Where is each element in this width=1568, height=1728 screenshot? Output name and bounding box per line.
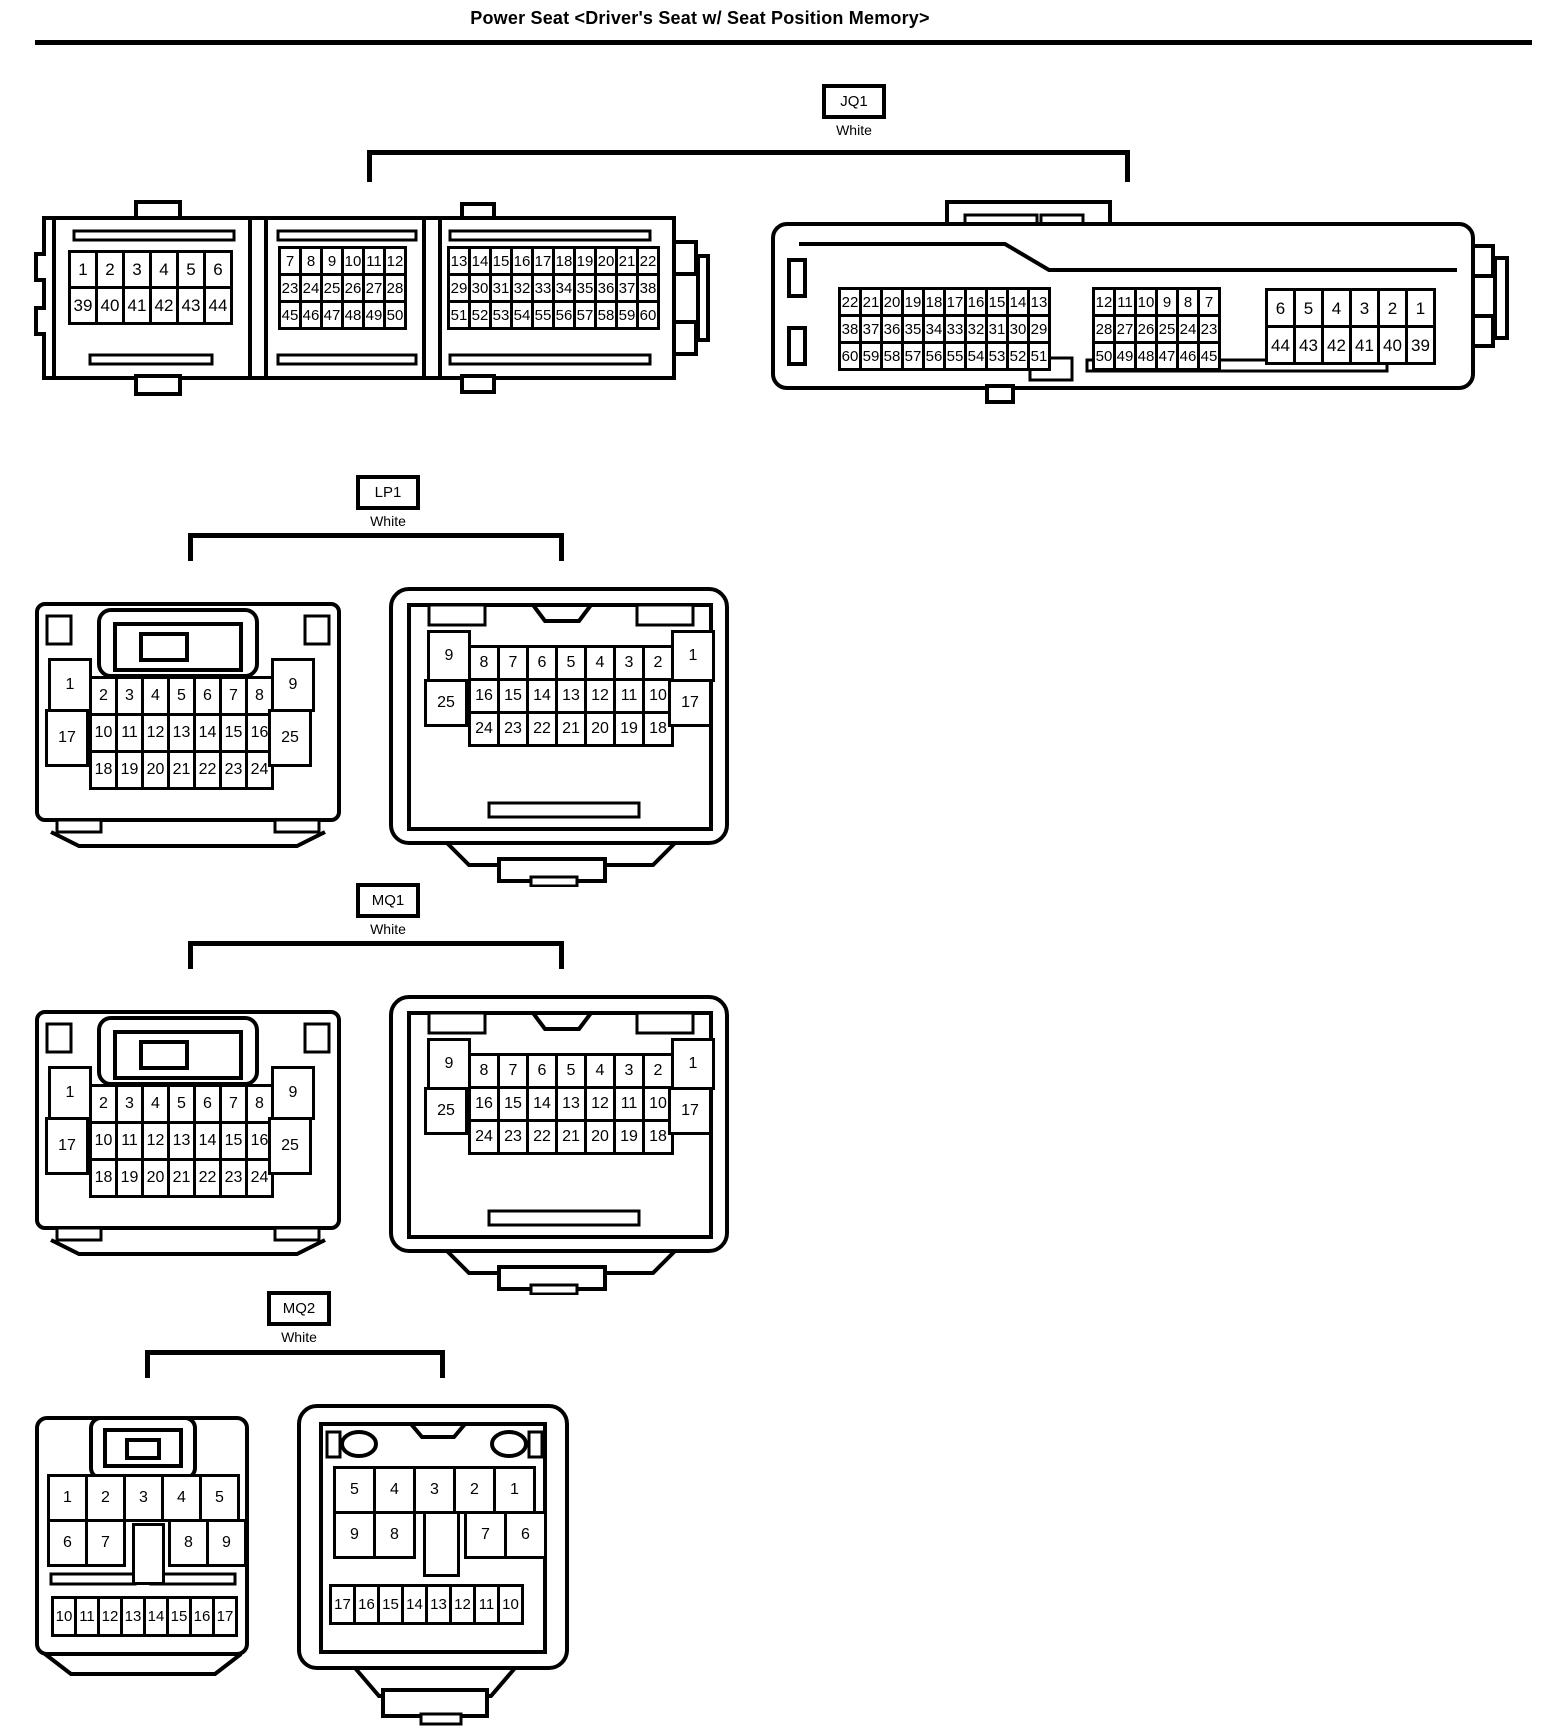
jq1-bracket bbox=[367, 150, 1130, 182]
jq1-label: JQ1 bbox=[840, 93, 868, 110]
mq2-color-label: White bbox=[247, 1329, 351, 1345]
pin-cavity-25: 25 bbox=[424, 679, 468, 727]
pin-cavity-19: 19 bbox=[115, 750, 144, 790]
pin-cavity-16: 16 bbox=[353, 1584, 380, 1625]
mq2-left-strip: 1011121314151617 bbox=[51, 1596, 238, 1637]
pin-cavity-13: 13 bbox=[555, 678, 587, 714]
pin-cavity-40: 40 bbox=[95, 286, 125, 325]
pin-cavity-blank bbox=[423, 1511, 460, 1577]
pin-cavity-8: 8 bbox=[168, 1519, 209, 1567]
pin-cavity-21: 21 bbox=[555, 1119, 587, 1155]
pin-cavity-5: 5 bbox=[333, 1466, 376, 1514]
pin-cavity-3: 3 bbox=[123, 1474, 164, 1522]
pin-cavity-6: 6 bbox=[526, 1053, 558, 1089]
pin-cavity-18: 18 bbox=[89, 750, 118, 790]
pin-cavity-1: 1 bbox=[1405, 288, 1436, 328]
pin-cavity-23: 23 bbox=[219, 750, 248, 790]
pin-cavity-9: 9 bbox=[333, 1511, 376, 1559]
pin-row: 29303132333435363738 bbox=[447, 273, 660, 303]
pin-row: 789101112 bbox=[278, 246, 407, 276]
jq1-right-block-b: 121110987282726252423504948474645 bbox=[1092, 287, 1221, 371]
pin-cavity-6: 6 bbox=[193, 676, 222, 716]
pin-cavity-3: 3 bbox=[115, 676, 144, 716]
pin-cavity-7: 7 bbox=[219, 676, 248, 716]
pin-cavity-9: 9 bbox=[271, 1066, 315, 1120]
pin-cavity-12: 12 bbox=[141, 713, 170, 753]
pin-cavity-11: 11 bbox=[115, 1121, 144, 1161]
pin-cavity-23: 23 bbox=[497, 1119, 529, 1155]
pin-cavity-6: 6 bbox=[203, 250, 233, 289]
pin-cavity-9: 9 bbox=[271, 658, 315, 712]
pin-cavity-17: 17 bbox=[45, 709, 89, 767]
lp1-left-pin-area: 117 23456781011121314151618192021222324 … bbox=[48, 658, 315, 790]
mq2-right-row1: 54321 bbox=[333, 1466, 547, 1514]
pin-cavity-13: 13 bbox=[1027, 287, 1051, 317]
pin-row: 22212019181716151413 bbox=[838, 287, 1051, 317]
mq2-label: MQ2 bbox=[283, 1300, 316, 1317]
pin-cavity-1: 1 bbox=[48, 1066, 92, 1120]
pin-cavity-5: 5 bbox=[1293, 288, 1324, 328]
pin-cavity-1: 1 bbox=[671, 1038, 715, 1090]
pin-cavity-15: 15 bbox=[497, 678, 529, 714]
pin-row: 16151413121110 bbox=[468, 678, 674, 714]
pin-cavity-44: 44 bbox=[203, 286, 233, 325]
pin-cavity-24: 24 bbox=[468, 1119, 500, 1155]
pin-cavity-22: 22 bbox=[193, 1158, 222, 1198]
pin-row: 60595857565554535251 bbox=[838, 341, 1051, 371]
pin-row: 18192021222324 bbox=[89, 750, 274, 790]
mq2-left-pin-area: 12345 6789 bbox=[47, 1474, 247, 1585]
pin-row: 38373635343332313029 bbox=[838, 314, 1051, 344]
pin-cavity-8: 8 bbox=[468, 645, 500, 681]
jq1-left-block-b: 789101112232425262728454647484950 bbox=[278, 246, 407, 330]
pin-cavity-7: 7 bbox=[464, 1511, 507, 1559]
jq1-label-box: JQ1 bbox=[822, 84, 886, 119]
pin-cavity-10: 10 bbox=[89, 713, 118, 753]
pin-row: 8765432 bbox=[468, 645, 674, 681]
pin-cavity-25: 25 bbox=[268, 1117, 312, 1175]
pin-cavity-41: 41 bbox=[1349, 325, 1380, 365]
pin-cavity-16: 16 bbox=[468, 1086, 500, 1122]
pin-cavity-2: 2 bbox=[642, 1053, 674, 1089]
pin-cavity-43: 43 bbox=[1293, 325, 1324, 365]
pin-cavity-50: 50 bbox=[383, 300, 407, 330]
pin-row: 454647484950 bbox=[278, 300, 407, 330]
pin-cavity-4: 4 bbox=[141, 1084, 170, 1124]
pin-cavity-42: 42 bbox=[149, 286, 179, 325]
pin-row: 24232221201918 bbox=[468, 1119, 674, 1155]
pin-cavity-16: 16 bbox=[468, 678, 500, 714]
lp1-right-col-left: 925 bbox=[427, 630, 471, 727]
pin-cavity-19: 19 bbox=[613, 711, 645, 747]
lp1-label-box: LP1 bbox=[356, 475, 420, 510]
mq2-right-strip: 1716151413121110 bbox=[329, 1584, 524, 1625]
pin-cavity-3: 3 bbox=[1349, 288, 1380, 328]
pin-cavity-15: 15 bbox=[219, 1121, 248, 1161]
pin-cavity-4: 4 bbox=[149, 250, 179, 289]
pin-cavity-8: 8 bbox=[373, 1511, 416, 1559]
pin-cavity-6: 6 bbox=[526, 645, 558, 681]
pin-cavity-23: 23 bbox=[497, 711, 529, 747]
pin-cavity-11: 11 bbox=[613, 678, 645, 714]
pin-cavity-1: 1 bbox=[671, 630, 715, 682]
pin-cavity-12: 12 bbox=[383, 246, 407, 276]
pin-cavity-20: 20 bbox=[584, 711, 616, 747]
lp1-right-connector: 925 87654321615141312111024232221201918 … bbox=[385, 575, 735, 887]
pin-cavity-22: 22 bbox=[636, 246, 660, 276]
pin-cavity-14: 14 bbox=[401, 1584, 428, 1625]
page-title: Power Seat <Driver's Seat w/ Seat Positi… bbox=[0, 8, 1400, 29]
pin-cavity-4: 4 bbox=[141, 676, 170, 716]
mq1-left-col-left: 117 bbox=[48, 1066, 92, 1175]
pin-cavity-9: 9 bbox=[206, 1519, 247, 1567]
pin-cavity-21: 21 bbox=[167, 750, 196, 790]
pin-cavity-20: 20 bbox=[584, 1119, 616, 1155]
lp1-left-col-right: 925 bbox=[271, 658, 315, 767]
pin-cavity-25: 25 bbox=[424, 1087, 468, 1135]
pin-cavity-15: 15 bbox=[377, 1584, 404, 1625]
pin-cavity-20: 20 bbox=[141, 750, 170, 790]
pin-row: 282726252423 bbox=[1092, 314, 1221, 344]
pin-cavity-22: 22 bbox=[193, 750, 222, 790]
pin-cavity-28: 28 bbox=[383, 273, 407, 303]
mq2-right-row2: 9876 bbox=[333, 1511, 547, 1577]
pin-cavity-12: 12 bbox=[584, 678, 616, 714]
mq1-right-connector: 925 87654321615141312111024232221201918 … bbox=[385, 983, 735, 1295]
pin-cavity-20: 20 bbox=[141, 1158, 170, 1198]
jq1-left-block-a: 123456394041424344 bbox=[68, 250, 233, 325]
pin-row: 232425262728 bbox=[278, 273, 407, 303]
pin-row: 13141516171819202122 bbox=[447, 246, 660, 276]
mq1-left-connector: 117 23456781011121314151618192021222324 … bbox=[35, 990, 345, 1256]
pin-cavity-5: 5 bbox=[199, 1474, 240, 1522]
jq1-right-block-c: 2221201918171615141338373635343332313029… bbox=[838, 287, 1051, 371]
pin-cavity-9: 9 bbox=[427, 630, 471, 682]
pin-row: 10111213141516 bbox=[89, 1121, 274, 1161]
pin-cavity-4: 4 bbox=[584, 1053, 616, 1089]
mq2-left-row2: 6789 bbox=[47, 1519, 247, 1585]
mq1-bracket bbox=[188, 941, 564, 969]
pin-cavity-13: 13 bbox=[167, 1121, 196, 1161]
pin-cavity-12: 12 bbox=[141, 1121, 170, 1161]
pin-cavity-14: 14 bbox=[193, 1121, 222, 1161]
pin-row: 394041424344 bbox=[68, 286, 233, 325]
jq1-left-connector: 123456394041424344 789101112232425262728… bbox=[32, 198, 722, 398]
pin-cavity-10: 10 bbox=[89, 1121, 118, 1161]
pin-cavity-40: 40 bbox=[1377, 325, 1408, 365]
lp1-left-grid: 23456781011121314151618192021222324 bbox=[89, 676, 274, 790]
pin-cavity-blank bbox=[132, 1523, 165, 1585]
pin-cavity-39: 39 bbox=[1405, 325, 1436, 365]
pin-cavity-1: 1 bbox=[48, 658, 92, 712]
pin-cavity-41: 41 bbox=[122, 286, 152, 325]
pin-cavity-5: 5 bbox=[555, 1053, 587, 1089]
pin-cavity-13: 13 bbox=[425, 1584, 452, 1625]
pin-row: 504948474645 bbox=[1092, 341, 1221, 371]
pin-cavity-7: 7 bbox=[219, 1084, 248, 1124]
pin-cavity-3: 3 bbox=[613, 645, 645, 681]
pin-cavity-12: 12 bbox=[584, 1086, 616, 1122]
mq2-left-row1: 12345 bbox=[47, 1474, 247, 1522]
pin-cavity-2: 2 bbox=[453, 1466, 496, 1514]
pin-cavity-15: 15 bbox=[497, 1086, 529, 1122]
pin-row: 2345678 bbox=[89, 676, 274, 716]
pin-cavity-1: 1 bbox=[493, 1466, 536, 1514]
pin-cavity-23: 23 bbox=[219, 1158, 248, 1198]
pin-cavity-17: 17 bbox=[668, 679, 712, 727]
lp1-right-col-right: 117 bbox=[671, 630, 715, 727]
pin-cavity-4: 4 bbox=[161, 1474, 202, 1522]
pin-cavity-14: 14 bbox=[193, 713, 222, 753]
mq2-right-connector: 54321 9876 1716151413121110 bbox=[293, 1398, 583, 1728]
pin-row: 16151413121110 bbox=[468, 1086, 674, 1122]
mq1-color-label: White bbox=[336, 921, 440, 937]
pin-row: 123456 bbox=[68, 250, 233, 289]
mq2-bracket bbox=[145, 1350, 445, 1378]
lp1-left-col-left: 117 bbox=[48, 658, 92, 767]
pin-row: 654321 bbox=[1265, 288, 1436, 328]
pin-cavity-5: 5 bbox=[167, 1084, 196, 1124]
pin-cavity-17: 17 bbox=[329, 1584, 356, 1625]
pin-cavity-8: 8 bbox=[468, 1053, 500, 1089]
pin-cavity-1: 1 bbox=[47, 1474, 88, 1522]
pin-cavity-21: 21 bbox=[167, 1158, 196, 1198]
pin-cavity-5: 5 bbox=[555, 645, 587, 681]
pin-row: 444342414039 bbox=[1265, 325, 1436, 365]
lp1-label: LP1 bbox=[375, 484, 402, 501]
pin-cavity-18: 18 bbox=[89, 1158, 118, 1198]
pin-cavity-13: 13 bbox=[167, 713, 196, 753]
lp1-left-connector: 117 23456781011121314151618192021222324 … bbox=[35, 582, 345, 848]
pin-row: 18192021222324 bbox=[89, 1158, 274, 1198]
pin-cavity-21: 21 bbox=[555, 711, 587, 747]
pin-cavity-14: 14 bbox=[526, 678, 558, 714]
mq2-right-pin-area: 54321 9876 bbox=[333, 1466, 547, 1577]
mq1-right-pin-area: 925 87654321615141312111024232221201918 … bbox=[427, 1038, 715, 1155]
pin-cavity-7: 7 bbox=[85, 1519, 126, 1567]
pin-cavity-4: 4 bbox=[584, 645, 616, 681]
mq1-right-grid: 87654321615141312111024232221201918 bbox=[468, 1053, 674, 1155]
pin-cavity-15: 15 bbox=[219, 713, 248, 753]
jq1-color-label: White bbox=[802, 122, 906, 138]
pin-cavity-6: 6 bbox=[193, 1084, 222, 1124]
pin-cavity-51: 51 bbox=[1027, 341, 1051, 371]
pin-cavity-17: 17 bbox=[45, 1117, 89, 1175]
mq2-label-box: MQ2 bbox=[267, 1291, 331, 1326]
wiring-diagram-page: { "title": "Power Seat <Driver's Seat w/… bbox=[0, 0, 1568, 1728]
pin-cavity-4: 4 bbox=[1321, 288, 1352, 328]
lp1-color-label: White bbox=[336, 513, 440, 529]
mq1-left-col-right: 925 bbox=[271, 1066, 315, 1175]
mq1-right-col-right: 117 bbox=[671, 1038, 715, 1135]
mq1-right-col-left: 925 bbox=[427, 1038, 471, 1135]
pin-cavity-7: 7 bbox=[1197, 287, 1221, 317]
lp1-bracket bbox=[188, 533, 564, 561]
pin-cavity-29: 29 bbox=[1027, 314, 1051, 344]
pin-cavity-2: 2 bbox=[1377, 288, 1408, 328]
pin-cavity-60: 60 bbox=[636, 300, 660, 330]
pin-cavity-7: 7 bbox=[497, 1053, 529, 1089]
pin-cavity-3: 3 bbox=[115, 1084, 144, 1124]
pin-cavity-2: 2 bbox=[85, 1474, 126, 1522]
pin-cavity-5: 5 bbox=[167, 676, 196, 716]
pin-cavity-2: 2 bbox=[95, 250, 125, 289]
pin-cavity-11: 11 bbox=[613, 1086, 645, 1122]
pin-cavity-19: 19 bbox=[613, 1119, 645, 1155]
pin-cavity-7: 7 bbox=[497, 645, 529, 681]
lp1-right-pin-area: 925 87654321615141312111024232221201918 … bbox=[427, 630, 715, 747]
pin-cavity-22: 22 bbox=[526, 711, 558, 747]
lp1-right-grid: 87654321615141312111024232221201918 bbox=[468, 645, 674, 747]
mq2-left-connector: 12345 6789 1011121314151617 bbox=[35, 1398, 251, 1682]
mq1-label-box: MQ1 bbox=[356, 883, 420, 918]
pin-cavity-3: 3 bbox=[613, 1053, 645, 1089]
pin-cavity-25: 25 bbox=[268, 709, 312, 767]
pin-cavity-3: 3 bbox=[413, 1466, 456, 1514]
pin-cavity-13: 13 bbox=[555, 1086, 587, 1122]
pin-cavity-11: 11 bbox=[473, 1584, 500, 1625]
mq1-left-pin-area: 117 23456781011121314151618192021222324 … bbox=[48, 1066, 315, 1198]
pin-cavity-2: 2 bbox=[89, 676, 118, 716]
pin-cavity-5: 5 bbox=[176, 250, 206, 289]
pin-cavity-23: 23 bbox=[1197, 314, 1221, 344]
pin-cavity-4: 4 bbox=[373, 1466, 416, 1514]
pin-cavity-17: 17 bbox=[668, 1087, 712, 1135]
pin-cavity-14: 14 bbox=[526, 1086, 558, 1122]
pin-cavity-2: 2 bbox=[89, 1084, 118, 1124]
pin-cavity-10: 10 bbox=[497, 1584, 524, 1625]
pin-row: 2345678 bbox=[89, 1084, 274, 1124]
pin-cavity-1: 1 bbox=[68, 250, 98, 289]
pin-row: 121110987 bbox=[1092, 287, 1221, 317]
mq1-left-grid: 23456781011121314151618192021222324 bbox=[89, 1084, 274, 1198]
pin-cavity-19: 19 bbox=[115, 1158, 144, 1198]
mq1-label: MQ1 bbox=[372, 892, 405, 909]
pin-cavity-17: 17 bbox=[212, 1596, 238, 1637]
pin-cavity-6: 6 bbox=[504, 1511, 547, 1559]
jq1-right-connector: 2221201918171615141338373635343332313029… bbox=[765, 200, 1510, 405]
pin-cavity-11: 11 bbox=[115, 713, 144, 753]
title-rule bbox=[35, 40, 1532, 45]
pin-cavity-22: 22 bbox=[526, 1119, 558, 1155]
jq1-left-block-c: 1314151617181920212229303132333435363738… bbox=[447, 246, 660, 330]
pin-cavity-43: 43 bbox=[176, 286, 206, 325]
pin-cavity-45: 45 bbox=[1197, 341, 1221, 371]
pin-row: 8765432 bbox=[468, 1053, 674, 1089]
pin-cavity-44: 44 bbox=[1265, 325, 1296, 365]
pin-cavity-6: 6 bbox=[1265, 288, 1296, 328]
pin-cavity-24: 24 bbox=[468, 711, 500, 747]
pin-cavity-38: 38 bbox=[636, 273, 660, 303]
pin-cavity-42: 42 bbox=[1321, 325, 1352, 365]
jq1-right-block-a: 654321444342414039 bbox=[1265, 288, 1436, 365]
pin-cavity-3: 3 bbox=[122, 250, 152, 289]
pin-cavity-39: 39 bbox=[68, 286, 98, 325]
pin-cavity-12: 12 bbox=[449, 1584, 476, 1625]
pin-cavity-2: 2 bbox=[642, 645, 674, 681]
pin-cavity-6: 6 bbox=[47, 1519, 88, 1567]
pin-cavity-9: 9 bbox=[427, 1038, 471, 1090]
pin-row: 51525354555657585960 bbox=[447, 300, 660, 330]
pin-row: 24232221201918 bbox=[468, 711, 674, 747]
pin-row: 10111213141516 bbox=[89, 713, 274, 753]
